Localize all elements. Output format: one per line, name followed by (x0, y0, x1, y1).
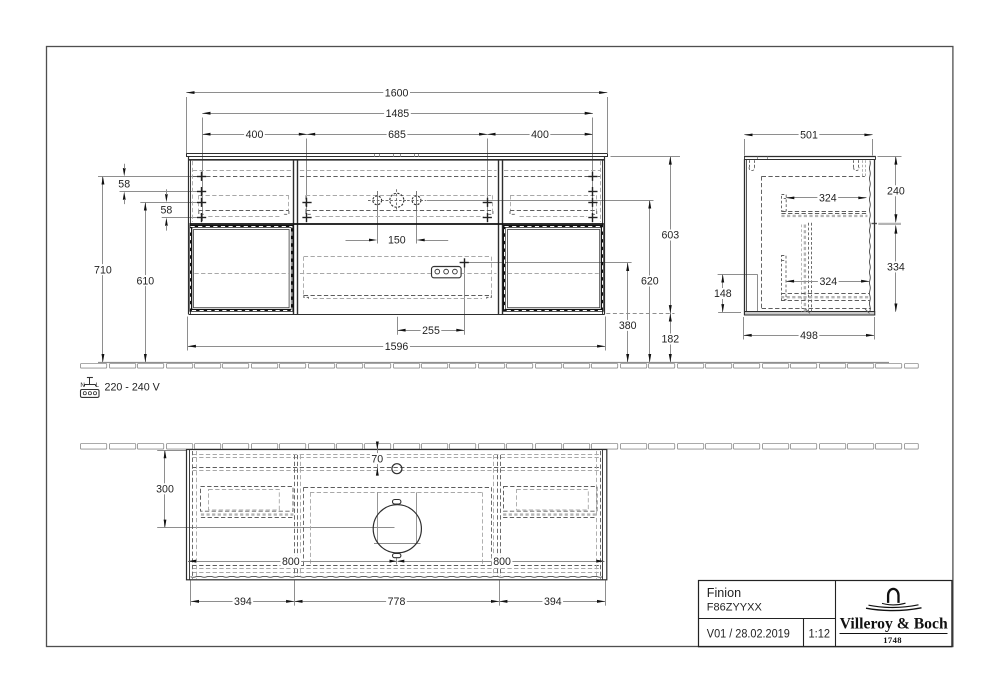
svg-text:800: 800 (493, 556, 511, 568)
svg-text:324: 324 (819, 276, 837, 288)
svg-text:603: 603 (661, 230, 679, 242)
svg-text:334: 334 (887, 262, 905, 274)
svg-text:400: 400 (531, 129, 549, 141)
svg-text:1485: 1485 (386, 108, 410, 120)
svg-text:182: 182 (661, 334, 679, 346)
svg-text:V01 / 28.02.2019: V01 / 28.02.2019 (707, 627, 790, 641)
svg-text:F86ZYYXX: F86ZYYXX (707, 602, 763, 614)
svg-text:620: 620 (641, 276, 659, 288)
svg-text:498: 498 (800, 330, 818, 342)
svg-text:N: N (80, 382, 84, 389)
svg-text:394: 394 (544, 596, 562, 608)
svg-text:710: 710 (94, 264, 112, 276)
svg-text:240: 240 (887, 186, 905, 198)
svg-text:58: 58 (118, 179, 130, 191)
svg-text:685: 685 (388, 129, 406, 141)
svg-text:800: 800 (282, 556, 300, 568)
svg-text:1748: 1748 (883, 635, 902, 645)
svg-text:300: 300 (156, 484, 174, 496)
svg-text:610: 610 (136, 275, 154, 287)
svg-text:380: 380 (619, 320, 637, 332)
svg-text:255: 255 (422, 325, 440, 337)
svg-text:L: L (95, 382, 99, 389)
svg-text:1:12: 1:12 (809, 627, 831, 641)
svg-text:324: 324 (819, 193, 837, 205)
svg-text:220 - 240 V: 220 - 240 V (105, 382, 161, 394)
svg-text:778: 778 (388, 596, 406, 608)
svg-text:148: 148 (714, 288, 732, 300)
svg-text:1600: 1600 (385, 87, 409, 99)
svg-text:58: 58 (161, 205, 173, 217)
svg-text:1596: 1596 (385, 341, 409, 353)
svg-text:400: 400 (246, 129, 264, 141)
svg-text:70: 70 (371, 453, 383, 465)
svg-text:Finion: Finion (707, 586, 741, 600)
svg-text:501: 501 (800, 130, 818, 142)
svg-text:Villeroy & Boch: Villeroy & Boch (840, 616, 948, 633)
svg-text:394: 394 (234, 596, 252, 608)
svg-text:150: 150 (388, 235, 406, 247)
